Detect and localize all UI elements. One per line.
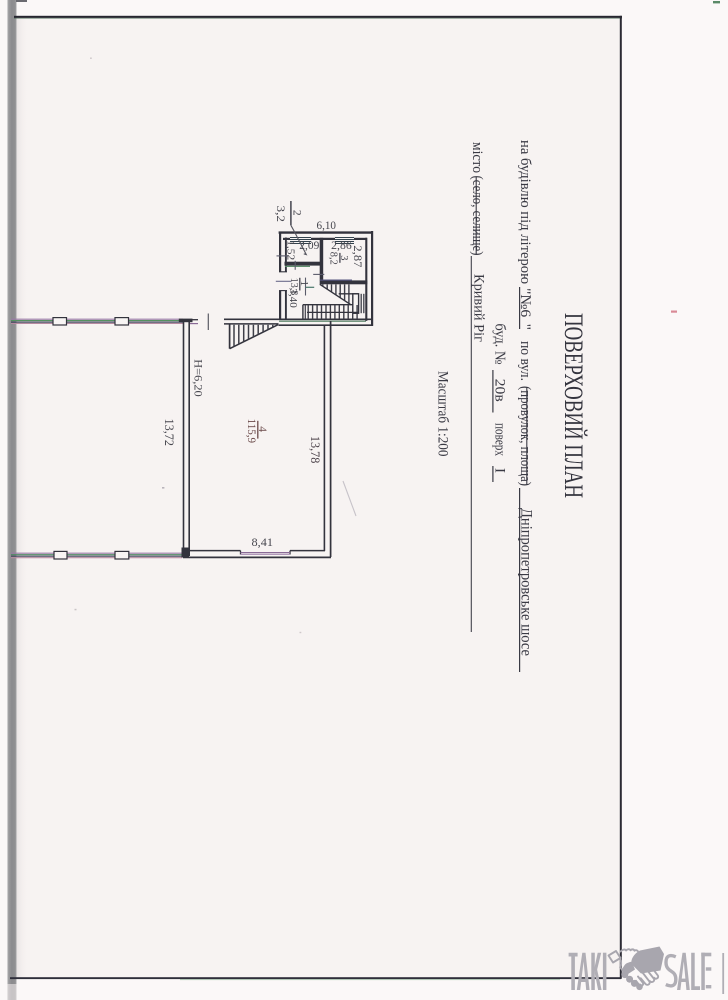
- svg-text:8,2: 8,2: [328, 252, 339, 265]
- svg-text:І: І: [492, 468, 508, 473]
- svg-text:4: 4: [256, 426, 268, 432]
- svg-text:2,86: 2,86: [331, 240, 352, 252]
- svg-text:8,41: 8,41: [252, 535, 274, 549]
- svg-text:2: 2: [291, 210, 303, 216]
- svg-text:на будівлю під літерою: на будівлю під літерою: [517, 140, 533, 284]
- svg-text:3,2: 3,2: [274, 206, 286, 223]
- svg-text:(село, селище): (село, селище): [469, 176, 485, 256]
- svg-text:13,78: 13,78: [308, 436, 323, 464]
- svg-text:буд. №: буд. №: [492, 324, 508, 365]
- svg-text:ПОВЕРХОВИЙ ПЛАН: ПОВЕРХОВИЙ ПЛАН: [559, 313, 588, 498]
- svg-text:3: 3: [338, 255, 349, 260]
- svg-text:2,09: 2,09: [299, 240, 319, 252]
- svg-text:по вул.: по вул.: [517, 341, 533, 381]
- svg-text:Кривий Ріг: Кривий Ріг: [471, 274, 487, 342]
- svg-text:6,10: 6,10: [317, 220, 337, 232]
- svg-text:115,9: 115,9: [245, 419, 257, 444]
- svg-text:місто: місто: [469, 142, 485, 173]
- svg-text:3,40: 3,40: [287, 288, 299, 308]
- svg-text:поверх: поверх: [492, 423, 508, 456]
- svg-text:Н=6,20: Н=6,20: [191, 359, 205, 397]
- svg-text:20в: 20в: [492, 379, 508, 402]
- svg-text:Масштаб 1:200: Масштаб 1:200: [435, 371, 451, 457]
- svg-text:1,52: 1,52: [284, 240, 296, 260]
- svg-text:13,72: 13,72: [162, 419, 177, 447]
- svg-text:(провулок, площа): (провулок, площа): [517, 386, 533, 486]
- svg-text:2,87: 2,87: [351, 245, 363, 267]
